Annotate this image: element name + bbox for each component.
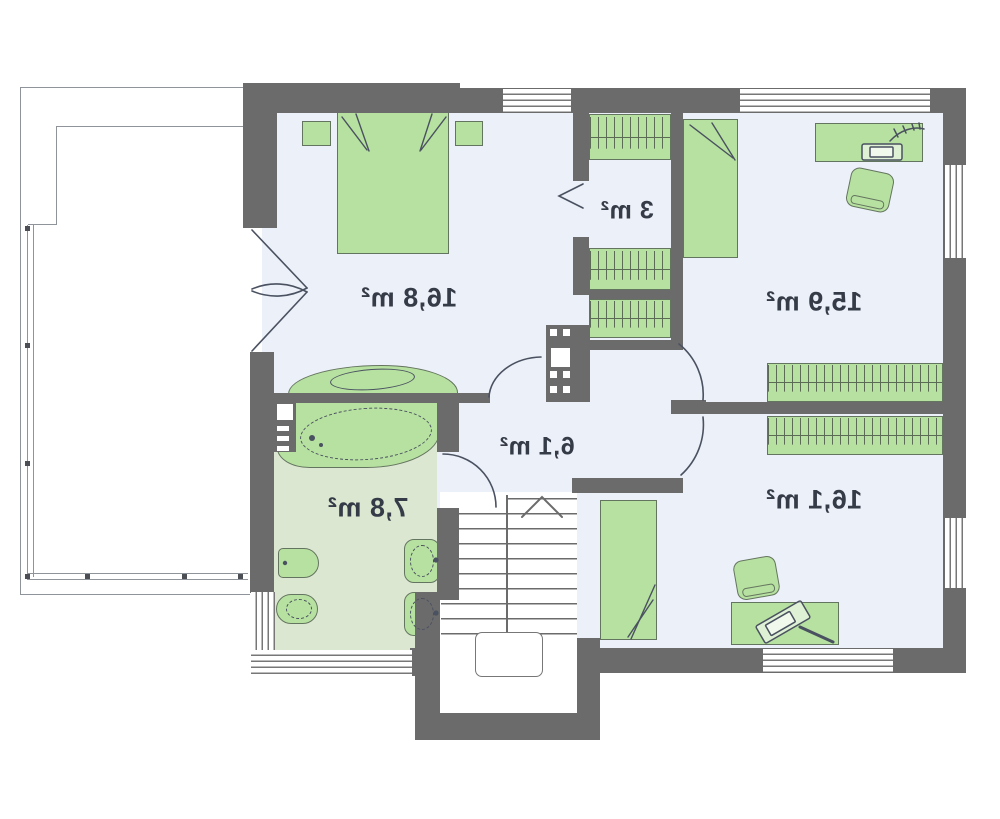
wall (437, 398, 459, 452)
wall (671, 400, 706, 414)
room-area-label: 6,1 m² (499, 433, 574, 462)
corner-window (251, 650, 412, 676)
terrace-railing-bottom (27, 573, 248, 580)
desk-icon (815, 123, 923, 162)
single-bed-icon (600, 500, 657, 640)
wardrobe-icon (589, 114, 671, 160)
towel-radiator-icon (277, 426, 289, 431)
wall (706, 402, 943, 414)
railing-post (182, 574, 187, 579)
wall (572, 478, 683, 493)
window (945, 165, 966, 258)
chair-icon (732, 555, 781, 602)
shaft-vent (563, 386, 570, 393)
railing-post (25, 461, 30, 466)
wardrobe-icon (589, 299, 671, 338)
shaft-vent (550, 386, 557, 393)
single-bed-icon (683, 119, 738, 258)
stairwell-wall (415, 713, 600, 740)
window (503, 89, 571, 112)
railing-post (85, 574, 90, 579)
terrace-railing-left (27, 225, 34, 577)
stairs-flight-right (508, 498, 577, 635)
bidet-bowl (286, 599, 312, 619)
wardrobe-icon (767, 416, 943, 455)
corner-window (251, 592, 275, 652)
desk-icon (731, 602, 839, 645)
terrace-inner-line-left (56, 126, 57, 225)
railing-post (238, 574, 243, 579)
room-area-label: 16,8 m² (361, 283, 458, 314)
room-area-label: 7,8 m² (327, 493, 408, 524)
wall (250, 352, 274, 593)
wall (573, 237, 589, 295)
wall (671, 113, 683, 350)
wall (243, 85, 277, 228)
shaft-vent (550, 329, 557, 336)
railing-post (25, 226, 30, 231)
sink-bowl (410, 598, 434, 630)
wall (573, 113, 589, 181)
wardrobe-icon (589, 248, 671, 290)
wall (274, 393, 460, 403)
wardrobe-icon (767, 363, 943, 402)
nightstand-icon (302, 121, 331, 146)
toilet-icon (278, 548, 319, 578)
room-area-label: 16,1 m² (766, 485, 863, 516)
shaft-vent (551, 348, 570, 367)
double-bed-icon (337, 112, 449, 254)
towel-radiator-icon (277, 436, 289, 441)
shaft-vent (563, 329, 570, 336)
stairs-divider (506, 495, 508, 635)
room-area-label: 15,9 m² (766, 287, 863, 318)
wall (589, 340, 672, 350)
room-area-label: 3 m² (600, 197, 653, 226)
railing-post (25, 343, 30, 348)
terrace-inner-line-top (57, 126, 247, 127)
wall (437, 508, 459, 600)
wall (589, 290, 672, 299)
window (945, 518, 966, 588)
stairs-landing (475, 632, 543, 677)
sink-bowl (410, 545, 434, 577)
towel-radiator-icon (277, 404, 293, 420)
towel-radiator-icon (277, 446, 289, 451)
window (740, 89, 930, 112)
terrace-outline (20, 87, 250, 595)
floor-plan: 16,8 m² 3 m² 15,9 m² 6,1 m² 7,8 m² 16,1 … (0, 0, 1000, 819)
shaft-vent (563, 371, 570, 378)
shaft-vent (550, 371, 557, 378)
wall (460, 393, 490, 403)
railing-post (25, 574, 30, 579)
window (763, 649, 893, 672)
nightstand-icon (455, 121, 483, 146)
